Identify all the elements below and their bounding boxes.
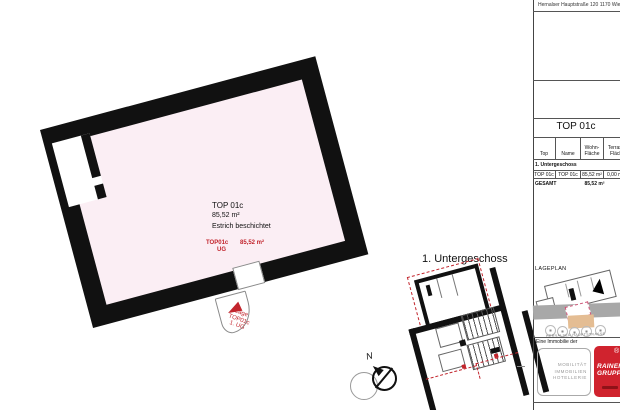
total-value: 85,52 m²: [583, 179, 606, 189]
logo-line-1: RAINER: [597, 363, 620, 370]
main-plan-walls: [40, 56, 368, 328]
header-text: Fläche: [584, 151, 599, 157]
registered-trademark-icon: ®: [614, 348, 619, 355]
fold-mark: [517, 366, 525, 367]
cell-name: TOP 01c: [556, 170, 581, 179]
logo-tagline-bar: [602, 386, 618, 389]
plan-stamp-floor: UG: [217, 247, 226, 253]
logo-line-2: GRUPPE: [597, 370, 620, 377]
overview-plan-drawing: [412, 255, 545, 410]
wall-segment: [568, 288, 576, 301]
header-text: Top: [540, 151, 548, 157]
cell-top: TOP 01c: [533, 170, 556, 179]
brand-field-hotellerie: HOTELLERIE: [553, 375, 587, 382]
wall-segment: [459, 339, 466, 346]
divider: [533, 118, 620, 119]
column-header-terrasse: Terrasse Fläche: [604, 138, 620, 160]
brand-fields-box: MOBILITÄT IMMOBILIEN HOTELLERIE: [537, 348, 591, 396]
table-total-row: GESAMT 85,52 m²: [533, 179, 620, 189]
cell-wohnflaeche: 85,52 m²: [581, 170, 604, 179]
total-label: GESAMT: [533, 179, 583, 189]
logo-wordmark: RAINER GRUPPE: [597, 363, 620, 377]
area-table: Top Name Wohn- Fläche Terrasse Fläche 1.…: [533, 137, 620, 189]
floor-plan-sheet: TOP 01c 85,52 m² Estrich beschichtet TOP…: [0, 0, 620, 410]
wall-segment: [426, 285, 433, 297]
north-label: N: [365, 350, 374, 361]
plan-area-label: 85,52 m²: [212, 212, 240, 219]
table-section-label: 1. Untergeschoss: [533, 160, 620, 170]
header-text: Fläche: [610, 151, 620, 157]
column-header-name: Name: [556, 138, 581, 160]
table-row: TOP 01c TOP 01c 85,52 m² 0,00 m²: [533, 170, 620, 179]
header-text: Name: [561, 151, 574, 157]
plan-stamp-area: 85,52 m²: [240, 240, 264, 246]
plan-stamp-unit: TOP01c: [206, 240, 228, 246]
project-address: Hernalser Hauptstraße 120 1170 Wien: [538, 2, 620, 8]
plan-unit-label: TOP 01c: [212, 201, 243, 210]
unit-heading: TOP 01c: [533, 121, 619, 132]
cell-terrasse: 0,00 m²: [604, 170, 620, 179]
lageplan-label: LAGEPLAN: [535, 266, 566, 272]
north-compass-icon: [372, 366, 397, 391]
divider: [533, 80, 620, 81]
divider: [533, 11, 620, 12]
title-block-border: [533, 0, 534, 410]
plan-finish-label: Estrich beschichtet: [212, 223, 271, 230]
column-header-top: Top: [533, 138, 556, 160]
divider: [533, 337, 620, 338]
brand-intro-label: Eine Immobilie der: [536, 339, 577, 345]
rainer-gruppe-logo: ® RAINER GRUPPE: [594, 346, 620, 397]
column-header-wohnflaeche: Wohn- Fläche: [581, 138, 604, 160]
wall-segment: [408, 328, 439, 410]
interior-line: [436, 278, 442, 298]
table-header-row: Top Name Wohn- Fläche Terrasse Fläche: [533, 138, 620, 160]
divider: [533, 402, 620, 403]
interior-line: [452, 274, 459, 296]
interior-line: [577, 281, 582, 297]
compass-needle-tip: [370, 363, 384, 376]
